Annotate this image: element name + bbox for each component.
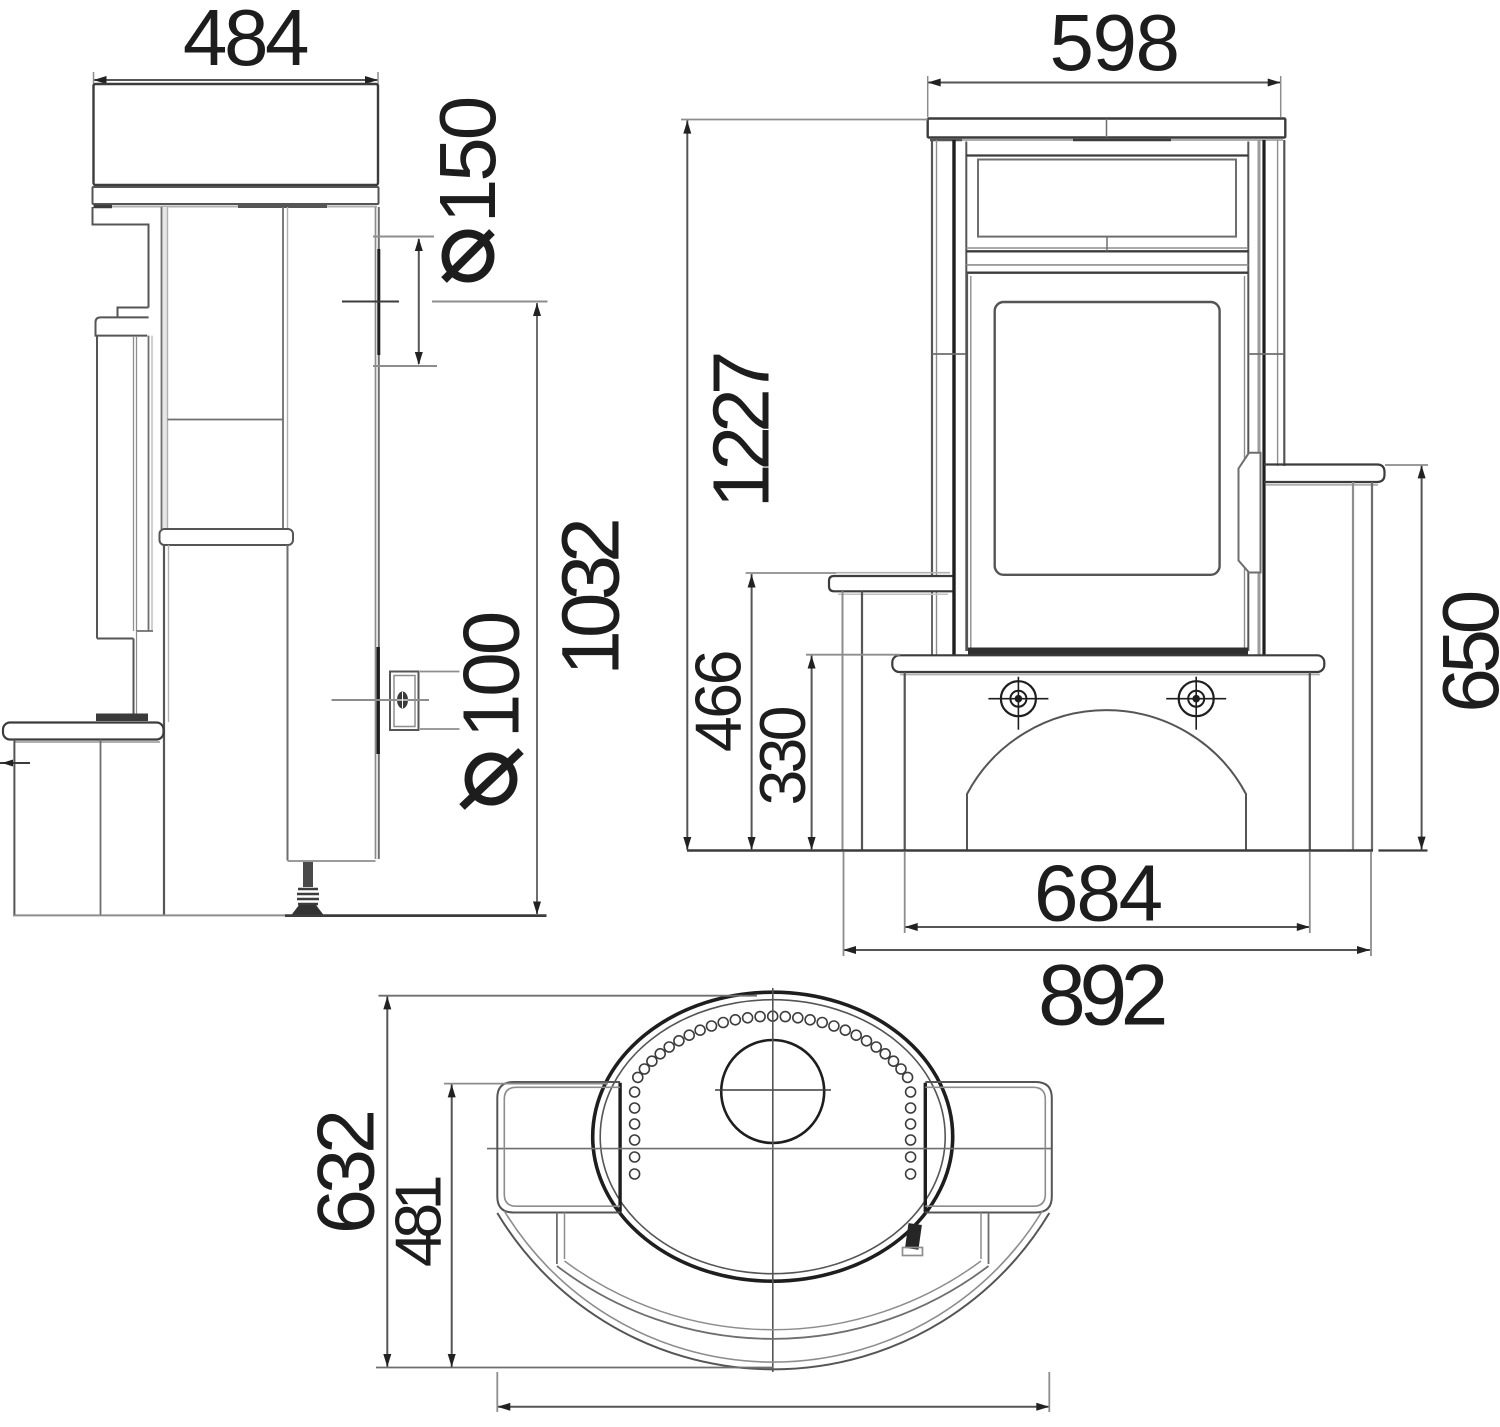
- svg-text:330: 330: [747, 707, 819, 805]
- svg-text:481: 481: [382, 1177, 454, 1267]
- svg-text:650: 650: [1426, 592, 1500, 712]
- svg-text:1227: 1227: [696, 354, 785, 508]
- svg-text:484: 484: [183, 0, 308, 82]
- svg-text:100: 100: [446, 613, 535, 738]
- svg-text:632: 632: [301, 1113, 391, 1234]
- svg-text:892: 892: [1038, 948, 1165, 1044]
- svg-text:684: 684: [1034, 848, 1162, 937]
- svg-text:1032: 1032: [546, 521, 637, 676]
- svg-text:150: 150: [423, 98, 512, 223]
- svg-text:466: 466: [683, 651, 755, 752]
- svg-text:598: 598: [1050, 0, 1179, 87]
